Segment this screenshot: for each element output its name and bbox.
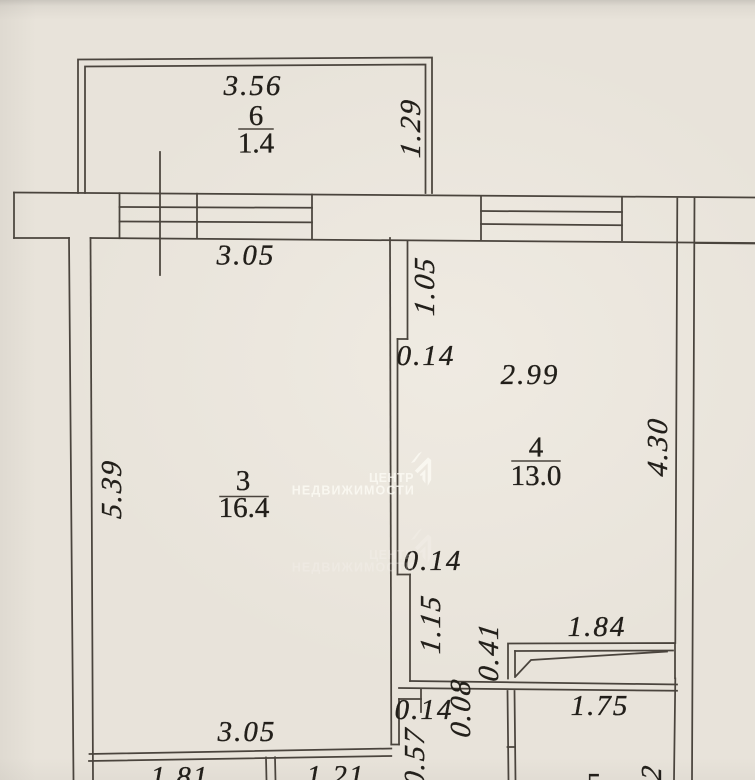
svg-text:2.99: 2.99: [501, 359, 560, 391]
svg-text:4.30: 4.30: [642, 415, 674, 478]
svg-text:0.08: 0.08: [445, 676, 477, 739]
svg-text:1.4: 1.4: [238, 128, 275, 160]
svg-text:1.05: 1.05: [409, 254, 441, 317]
svg-text:1.81: 1.81: [151, 761, 210, 780]
svg-text:13.0: 13.0: [511, 460, 562, 492]
svg-text:2: 2: [636, 762, 668, 780]
svg-text:16.4: 16.4: [219, 492, 270, 524]
svg-text:1.84: 1.84: [568, 611, 627, 643]
svg-text:НЕДВИЖИМОСТИ: НЕДВИЖИМОСТИ: [292, 484, 415, 498]
svg-text:0.41: 0.41: [473, 620, 505, 683]
svg-text:5.39: 5.39: [96, 457, 128, 520]
svg-text:3.56: 3.56: [223, 70, 283, 102]
svg-text:1.75: 1.75: [571, 690, 630, 722]
svg-text:4: 4: [529, 432, 544, 464]
svg-text:1.21: 1.21: [307, 760, 366, 780]
svg-text:1.15: 1.15: [415, 592, 447, 655]
svg-text:3.05: 3.05: [216, 240, 276, 272]
svg-text:0.57: 0.57: [399, 725, 431, 780]
svg-text:1.29: 1.29: [395, 96, 427, 159]
svg-text:0.14: 0.14: [397, 340, 456, 372]
svg-text:5: 5: [587, 768, 602, 780]
svg-text:НЕДВИЖИМОСТИ: НЕДВИЖИМОСТИ: [292, 561, 415, 575]
svg-text:3.05: 3.05: [217, 716, 277, 748]
